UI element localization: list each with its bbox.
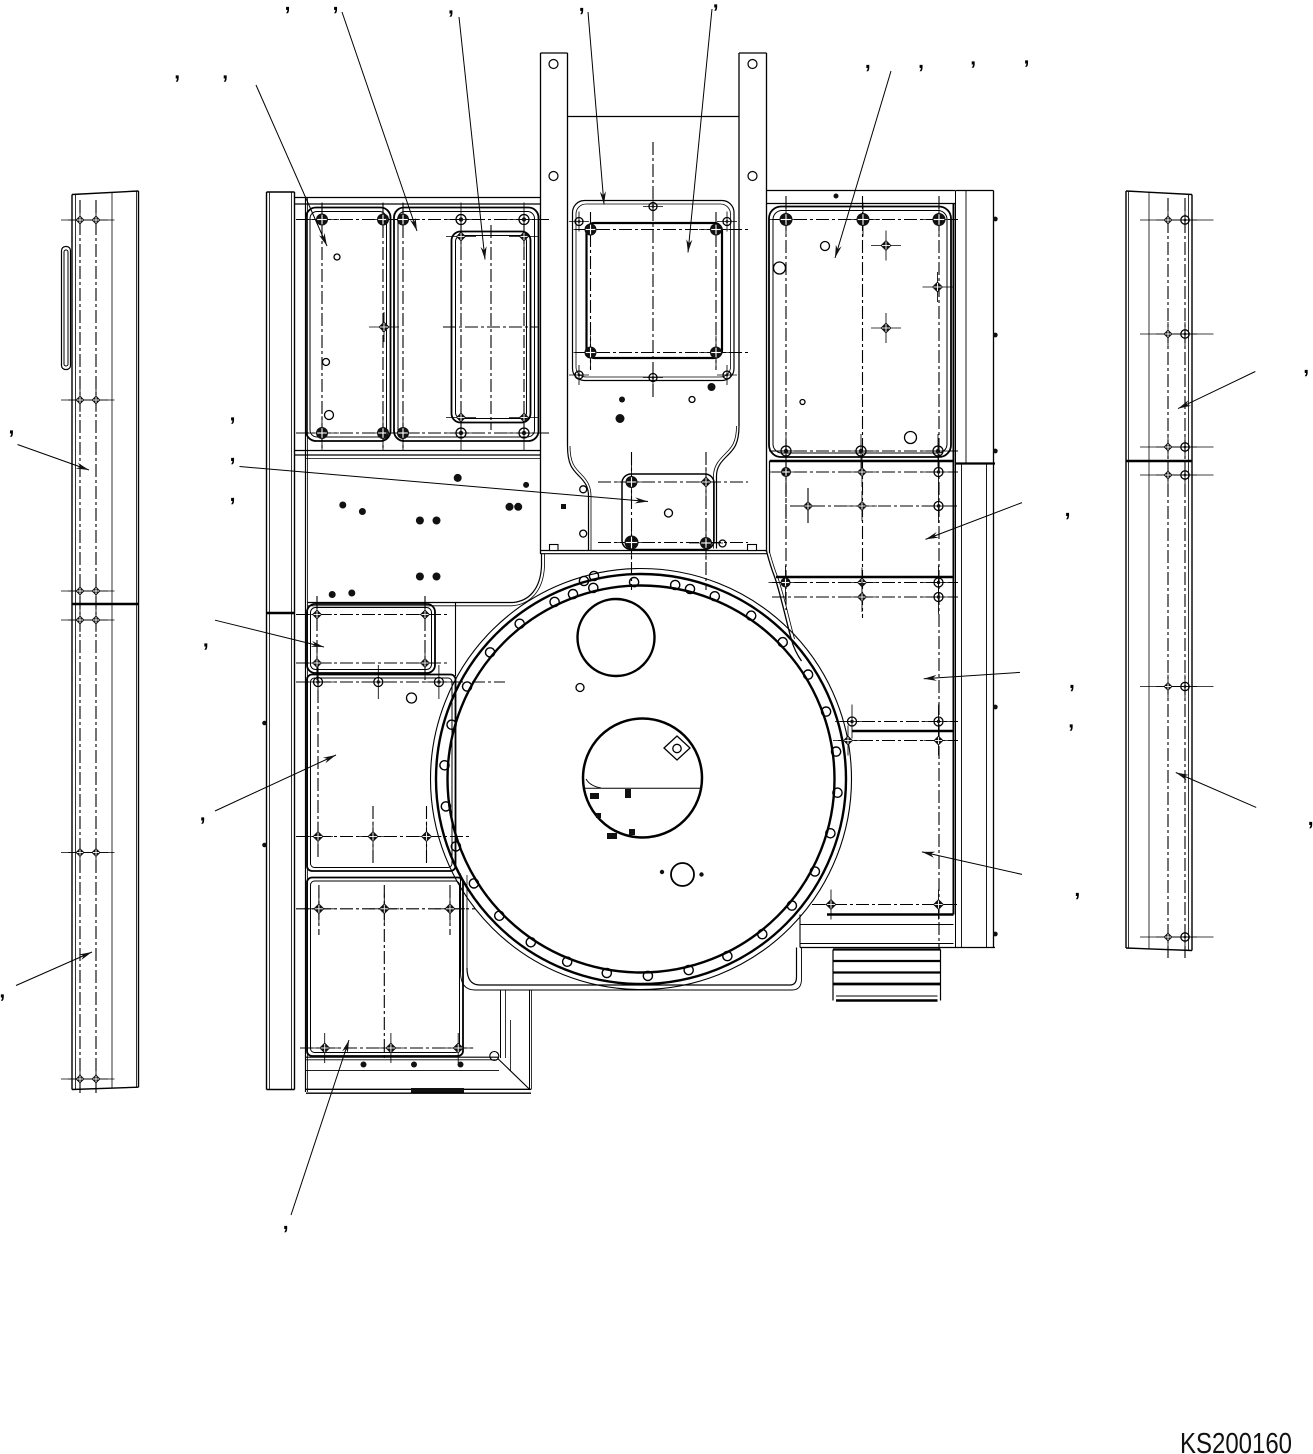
svg-text:,: ,	[200, 802, 206, 825]
svg-text:,: ,	[1303, 355, 1309, 378]
svg-text:,: ,	[333, 0, 339, 15]
svg-text:,: ,	[0, 980, 5, 1003]
svg-text:KS200160: KS200160	[1180, 1428, 1292, 1454]
svg-text:,: ,	[918, 50, 924, 73]
svg-text:,: ,	[9, 415, 15, 438]
svg-text:,: ,	[174, 60, 180, 83]
svg-text:,: ,	[713, 0, 719, 13]
svg-text:,: ,	[230, 403, 236, 426]
svg-text:,: ,	[230, 443, 236, 466]
svg-text:,: ,	[1069, 670, 1075, 693]
svg-text:,: ,	[230, 483, 236, 506]
svg-text:,: ,	[970, 47, 976, 70]
svg-text:,: ,	[865, 50, 871, 73]
svg-text:,: ,	[1068, 710, 1074, 733]
svg-text:,: ,	[1024, 46, 1030, 69]
svg-text:,: ,	[203, 629, 209, 652]
svg-text:,: ,	[579, 0, 585, 16]
svg-text:,: ,	[1308, 807, 1313, 830]
svg-text:,: ,	[285, 0, 291, 15]
svg-text:,: ,	[448, 0, 454, 18]
svg-text:,: ,	[1065, 498, 1071, 521]
svg-text:,: ,	[283, 1211, 289, 1234]
svg-text:,: ,	[1074, 878, 1080, 901]
svg-text:,: ,	[222, 60, 228, 83]
